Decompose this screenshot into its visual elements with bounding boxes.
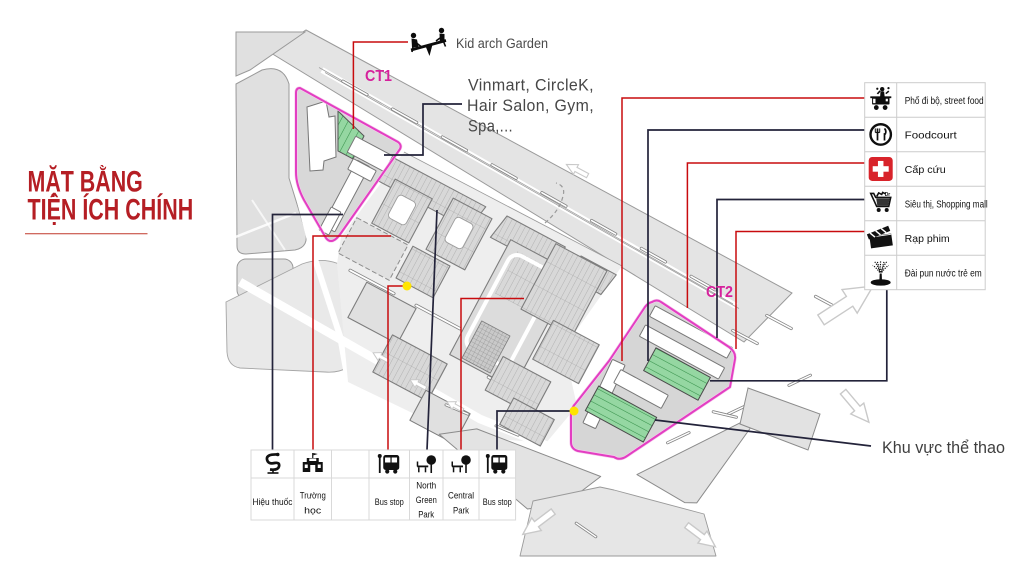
svg-text:Rạp phim: Rạp phim (905, 234, 950, 245)
svg-text:Green: Green (416, 495, 437, 506)
svg-text:Khu vực thể thao: Khu vực thể thao (882, 438, 1005, 457)
svg-text:Kid arch Garden: Kid arch Garden (456, 36, 548, 51)
svg-text:Đài pun nước trẻ em: Đài pun nước trẻ em (905, 268, 982, 279)
svg-text:Siêu thị, Shopping mall: Siêu thị, Shopping mall (905, 199, 988, 210)
svg-text:Cấp cứu: Cấp cứu (905, 164, 946, 176)
svg-text:CT2: CT2 (706, 284, 733, 301)
svg-text:Vinmart, CircleK,: Vinmart, CircleK, (468, 77, 594, 95)
svg-text:Phố đi bộ, street food: Phố đi bộ, street food (905, 95, 984, 107)
svg-text:Bus stop: Bus stop (483, 497, 512, 508)
svg-text:CT1: CT1 (365, 68, 392, 85)
svg-text:TIỆN ÍCH CHÍNH: TIỆN ÍCH CHÍNH (28, 192, 194, 226)
svg-text:Hair Salon, Gym,: Hair Salon, Gym, (467, 97, 594, 115)
svg-text:Central: Central (448, 491, 474, 502)
svg-text:học: học (304, 505, 321, 516)
svg-text:Trường: Trường (300, 491, 326, 502)
svg-text:Foodcourt: Foodcourt (905, 130, 957, 141)
svg-text:Park: Park (453, 505, 469, 516)
svg-text:Park: Park (418, 510, 434, 521)
svg-text:Spa,...: Spa,... (468, 118, 513, 136)
svg-text:Dr: Dr (885, 192, 891, 198)
svg-text:Bus stop: Bus stop (375, 497, 404, 508)
svg-text:North: North (416, 480, 436, 491)
svg-text:Hiệu thuốc: Hiệu thuốc (253, 497, 293, 508)
